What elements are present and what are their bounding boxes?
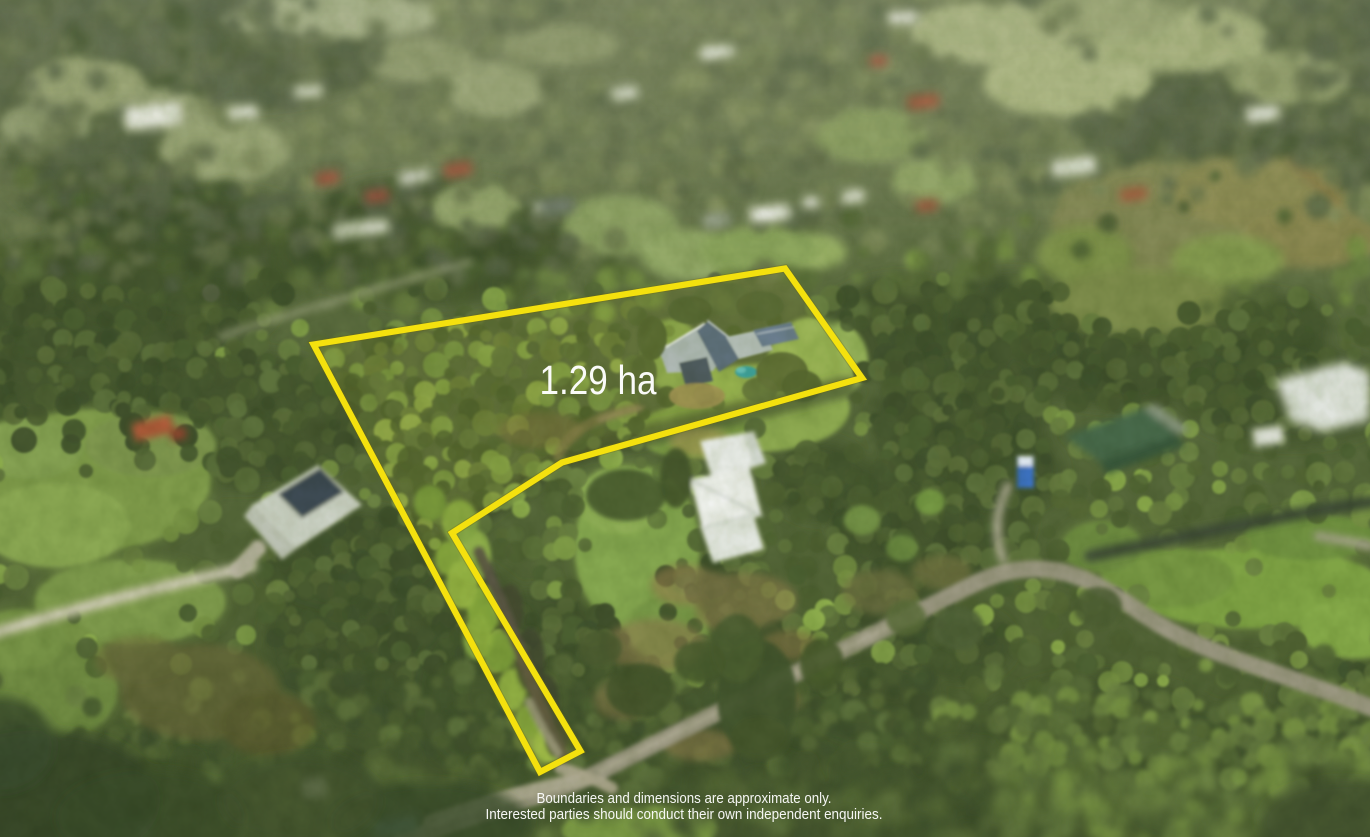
svg-text:Interested parties should cond: Interested parties should conduct their … xyxy=(486,807,883,823)
svg-text:Boundaries and dimensions are: Boundaries and dimensions are approximat… xyxy=(537,791,832,807)
svg-text:1.29 ha: 1.29 ha xyxy=(540,357,657,403)
